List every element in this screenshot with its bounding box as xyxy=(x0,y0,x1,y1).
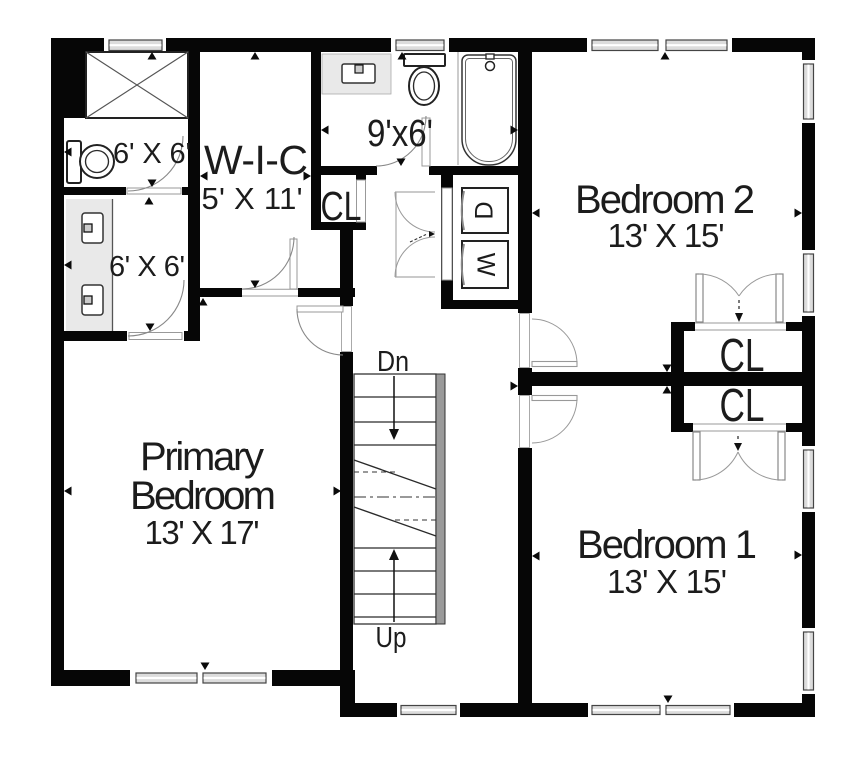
svg-text:D: D xyxy=(471,201,499,219)
svg-text:CL: CL xyxy=(720,329,765,381)
svg-text:6' X 6': 6' X 6' xyxy=(113,138,191,170)
svg-text:CL: CL xyxy=(720,379,765,431)
svg-text:6' X 6': 6' X 6' xyxy=(109,251,185,283)
svg-text:W: W xyxy=(472,253,500,277)
svg-text:Bedroom: Bedroom xyxy=(130,474,276,518)
svg-text:9'x6': 9'x6' xyxy=(367,113,433,155)
svg-text:13' X 17': 13' X 17' xyxy=(145,514,260,551)
svg-text:Up: Up xyxy=(376,622,407,654)
svg-text:13' X 15': 13' X 15' xyxy=(607,563,727,600)
svg-text:W-I-C: W-I-C xyxy=(204,137,308,183)
svg-text:Bedroom 2: Bedroom 2 xyxy=(575,178,755,222)
svg-text:Bedroom 1: Bedroom 1 xyxy=(577,523,757,567)
svg-text:CL: CL xyxy=(321,183,362,229)
svg-text:5' X 11': 5' X 11' xyxy=(202,181,303,216)
svg-text:Dn: Dn xyxy=(377,346,409,378)
svg-text:13' X 15': 13' X 15' xyxy=(608,217,725,254)
svg-text:Primary: Primary xyxy=(140,435,264,479)
